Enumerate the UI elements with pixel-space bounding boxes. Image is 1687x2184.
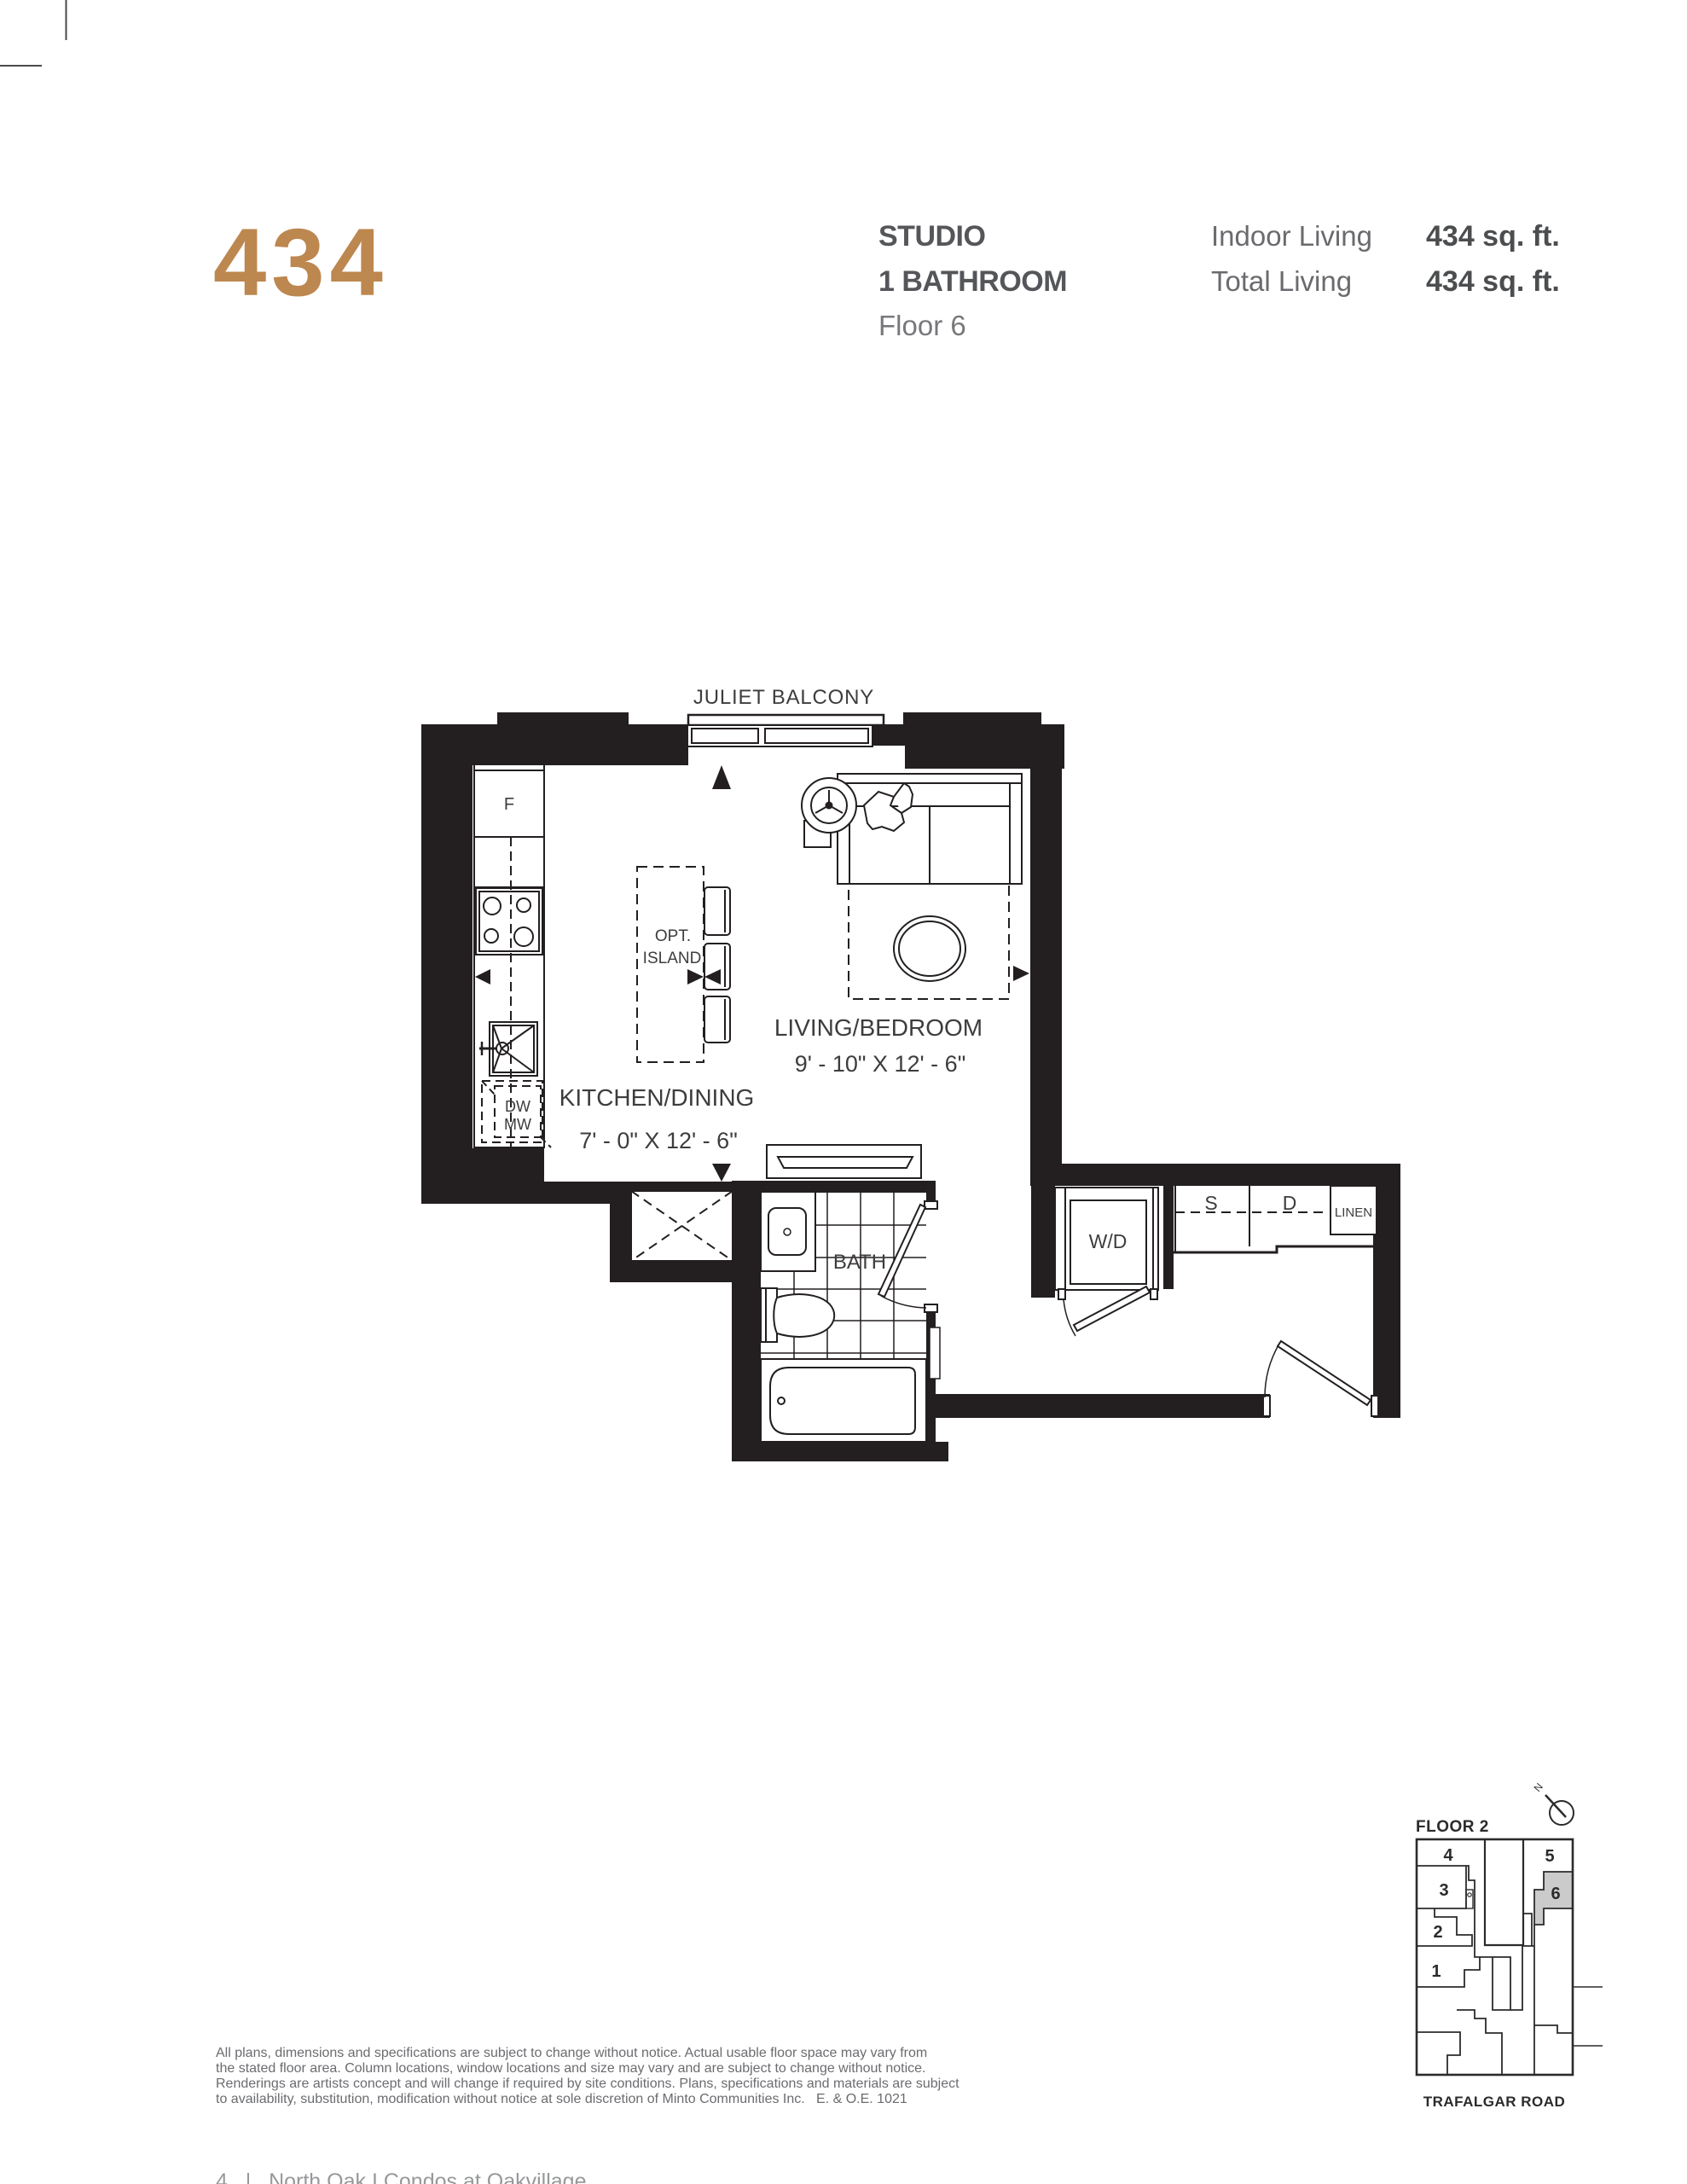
svg-text:F: F — [504, 795, 514, 814]
svg-text:1: 1 — [1431, 1962, 1441, 1981]
svg-text:DW: DW — [505, 1098, 530, 1115]
svg-text:STUDIO: STUDIO — [878, 220, 986, 253]
svg-text:All plans, dimensions and spec: All plans, dimensions and specifications… — [216, 2046, 927, 2060]
svg-text:434 sq. ft.: 434 sq. ft. — [1426, 220, 1560, 253]
svg-text:KITCHEN/DINING: KITCHEN/DINING — [559, 1084, 755, 1111]
svg-text:to availability, substitution,: to availability, substitution, modificat… — [216, 2092, 907, 2106]
svg-text:4: 4 — [1443, 1846, 1453, 1865]
svg-text:S: S — [1204, 1192, 1217, 1214]
svg-text:JULIET BALCONY: JULIET BALCONY — [693, 686, 874, 709]
svg-text:Total Living: Total Living — [1211, 265, 1352, 297]
svg-text:434 sq. ft.: 434 sq. ft. — [1426, 265, 1560, 298]
svg-text:7' - 0" X 12' - 6": 7' - 0" X 12' - 6" — [579, 1128, 738, 1153]
svg-text:FLOOR 2: FLOOR 2 — [1416, 1818, 1489, 1836]
svg-text:Indoor Living: Indoor Living — [1211, 220, 1372, 252]
svg-text:LINEN: LINEN — [1335, 1205, 1372, 1220]
svg-text:3: 3 — [1439, 1881, 1448, 1900]
svg-text:2: 2 — [1433, 1923, 1442, 1942]
svg-text:6: 6 — [1551, 1885, 1560, 1903]
svg-text:the stated floor area. Column: the stated floor area. Column locations,… — [216, 2061, 925, 2076]
svg-text:ISLAND: ISLAND — [643, 950, 702, 967]
svg-text:D: D — [1283, 1192, 1297, 1214]
svg-text:5: 5 — [1545, 1847, 1554, 1866]
svg-text:BATH: BATH — [833, 1251, 886, 1274]
svg-text:Renderings are artists concept: Renderings are artists concept and will … — [216, 2077, 959, 2091]
svg-text:434: 434 — [213, 209, 388, 316]
svg-text:LIVING/BEDROOM: LIVING/BEDROOM — [774, 1014, 983, 1041]
svg-text:9' - 10" X 12' - 6": 9' - 10" X 12' - 6" — [795, 1051, 966, 1077]
svg-text:Floor 6: Floor 6 — [878, 310, 966, 341]
svg-text:TRAFALGAR ROAD: TRAFALGAR ROAD — [1423, 2094, 1566, 2110]
svg-text:4 | North Oak I Condos at: 4 | North Oak I Condos at Oakvillage — [216, 2169, 586, 2184]
svg-text:OPT.: OPT. — [655, 927, 691, 945]
svg-text:W/D: W/D — [1089, 1230, 1128, 1252]
svg-text:1 BATHROOM: 1 BATHROOM — [878, 265, 1067, 298]
svg-text:N: N — [1532, 1780, 1545, 1794]
svg-text:MW: MW — [504, 1116, 531, 1133]
